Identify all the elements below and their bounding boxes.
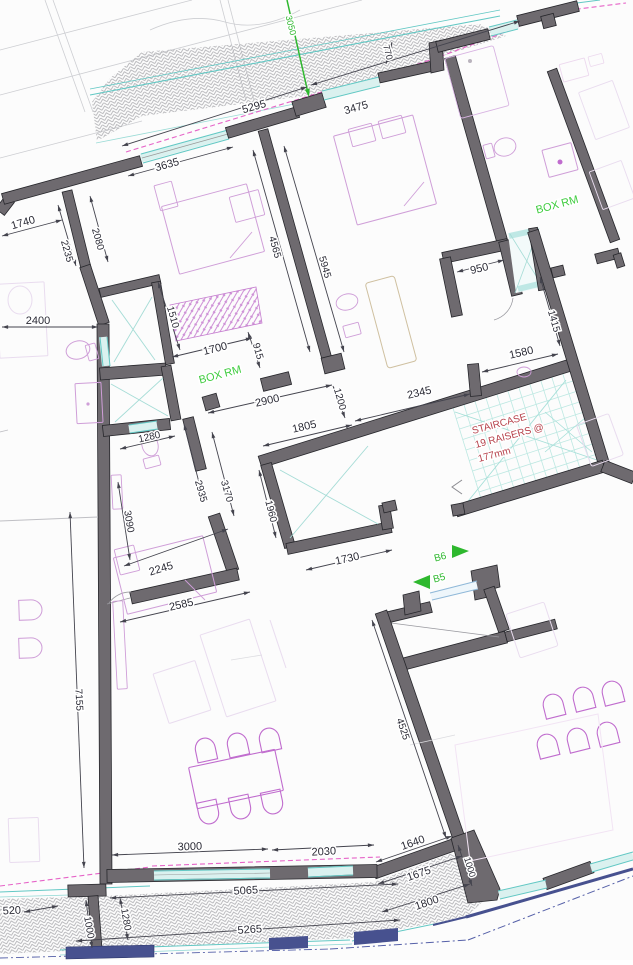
- svg-text:2400: 2400: [26, 315, 50, 327]
- svg-text:2030: 2030: [311, 845, 336, 858]
- svg-text:5265: 5265: [237, 923, 262, 937]
- svg-text:5065: 5065: [233, 884, 258, 897]
- svg-text:3000: 3000: [177, 841, 202, 854]
- svg-text:7155: 7155: [72, 688, 84, 711]
- svg-text:520: 520: [2, 905, 21, 918]
